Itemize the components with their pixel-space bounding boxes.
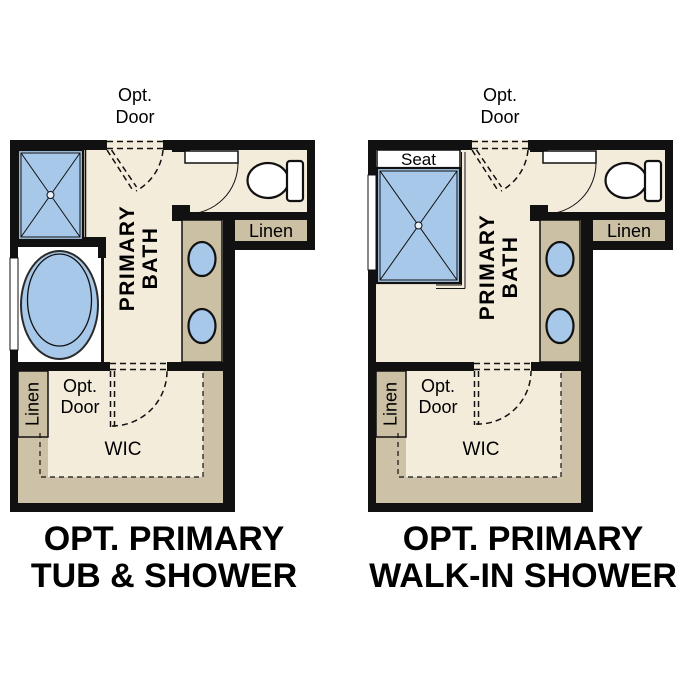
linen-label-upper: Linen: [593, 220, 665, 241]
opt-door-wic-line2: Door: [51, 397, 109, 418]
opt-door-label-wic: Opt. Door: [51, 376, 109, 418]
floorplan-drawing-tub-shower: [10, 140, 315, 512]
floorplan-drawing-walk-in-shower: [368, 140, 673, 512]
window: [10, 258, 18, 350]
linen-label-wic: Linen: [23, 382, 44, 426]
toilet-bowl: [248, 163, 289, 198]
plan-title-tub-shower: OPT. PRIMARY TUB & SHOWER: [31, 521, 297, 595]
primary-bath-line2: BATH: [499, 214, 522, 321]
opt-door-label-top: Opt. Door: [95, 84, 175, 128]
seat-label: Seat: [377, 150, 460, 168]
opt-door-wic-line2: Door: [409, 397, 467, 418]
sink: [189, 309, 216, 343]
opt-door-label-wic: Opt. Door: [409, 376, 467, 418]
floorplan-walk-in-shower: Seat Opt. Door PRIMARY BATH Linen Linen …: [368, 140, 673, 512]
sink: [189, 242, 216, 276]
opt-door-label-line2: Door: [95, 106, 175, 128]
primary-bath-line1: PRIMARY: [116, 205, 139, 312]
bathtub: [21, 251, 98, 359]
shower-drain: [415, 222, 422, 229]
plan-title-line2: TUB & SHOWER: [31, 558, 297, 595]
toilet-tank: [645, 161, 661, 201]
wic-label: WIC: [105, 439, 142, 461]
entry-door-leaf: [543, 151, 596, 163]
primary-bath-label: PRIMARY BATH: [476, 214, 522, 321]
walk-in-shower: [377, 150, 465, 289]
plan-title-line1: OPT. PRIMARY: [31, 521, 297, 558]
window: [368, 175, 376, 270]
primary-bath-line2: BATH: [139, 205, 162, 312]
shower: [18, 150, 86, 240]
opt-door-wic-line1: Opt.: [409, 376, 467, 397]
plan-title-line1: OPT. PRIMARY: [369, 521, 677, 558]
plan-title-line2: WALK-IN SHOWER: [369, 558, 677, 595]
toilet-tank: [287, 161, 303, 201]
opt-door-label-line2: Door: [460, 106, 540, 128]
sink: [547, 309, 574, 343]
wic-label: WIC: [463, 439, 500, 461]
opt-door-wic-line1: Opt.: [51, 376, 109, 397]
shower-drain: [47, 192, 54, 199]
opt-door-label-line1: Opt.: [95, 84, 175, 106]
plan-title-walk-in-shower: OPT. PRIMARY WALK-IN SHOWER: [369, 521, 677, 595]
toilet-bowl: [606, 163, 647, 198]
opt-door-label-top: Opt. Door: [460, 84, 540, 128]
opt-door-label-line1: Opt.: [460, 84, 540, 106]
linen-label-upper: Linen: [235, 220, 307, 241]
primary-bath-line1: PRIMARY: [476, 214, 499, 321]
sink: [547, 242, 574, 276]
floorplan-sheet: Opt. Door PRIMARY BATH Linen Linen Opt. …: [0, 0, 687, 687]
toilet: [248, 161, 304, 201]
toilet: [606, 161, 662, 201]
entry-door-leaf: [185, 151, 238, 163]
linen-label-wic: Linen: [381, 382, 402, 426]
primary-bath-label: PRIMARY BATH: [116, 205, 162, 312]
floorplan-tub-shower: Opt. Door PRIMARY BATH Linen Linen Opt. …: [10, 140, 315, 512]
